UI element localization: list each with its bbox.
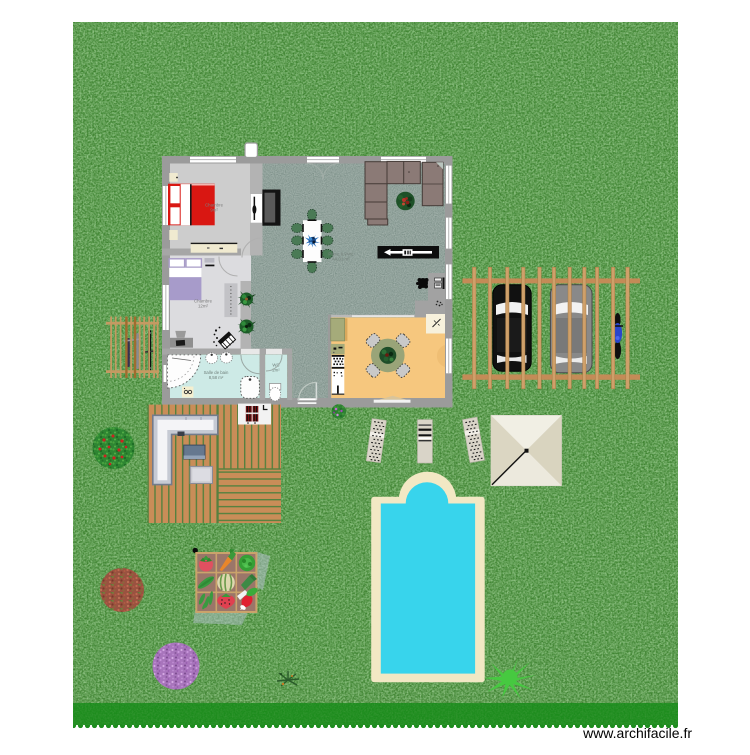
svg-text:9m²: 9m² <box>210 208 218 213</box>
svg-text:8,58 m²: 8,58 m² <box>209 375 224 380</box>
svg-text:12m²: 12m² <box>198 304 209 309</box>
svg-text:2m²: 2m² <box>272 368 280 373</box>
svg-text:44,01 m²: 44,01 m² <box>332 257 350 262</box>
svg-text:www.archifacile.fr: www.archifacile.fr <box>582 725 692 741</box>
